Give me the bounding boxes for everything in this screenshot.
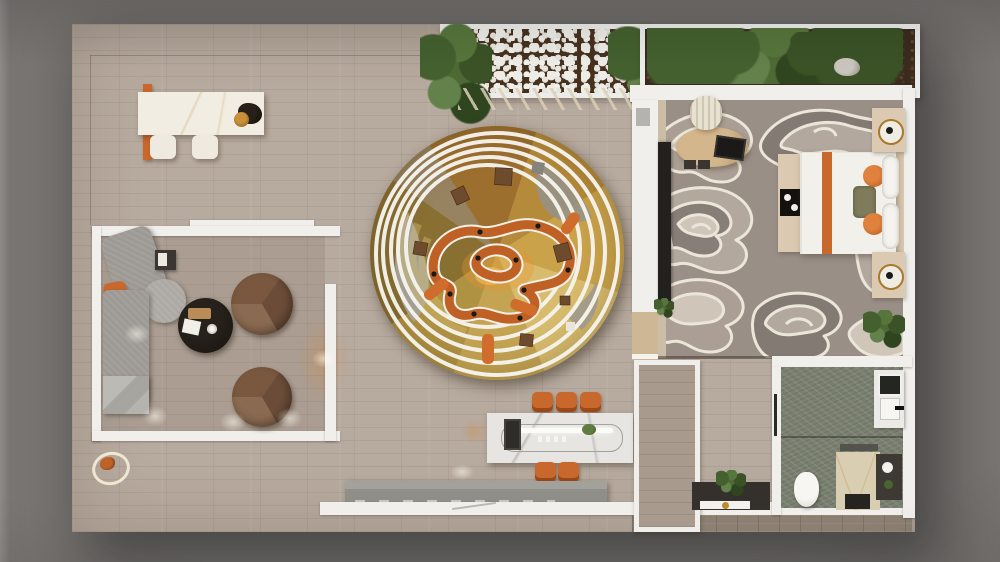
dining-chair (532, 392, 553, 412)
toilet (794, 472, 819, 507)
coffee-machine (504, 419, 521, 450)
living-wall-left (92, 226, 101, 441)
nightstand-lamp-center (886, 272, 893, 279)
bedroom-door-threshold (632, 312, 658, 360)
light-pool (124, 324, 150, 344)
niche-plant (884, 480, 893, 489)
bedroom-wall-left (632, 100, 658, 312)
desk-tray (684, 160, 696, 169)
console-plant (716, 470, 746, 496)
nightstand-lamp-center (886, 127, 893, 134)
side-table-card (158, 253, 167, 266)
reception-stool-right (192, 135, 218, 159)
shower-head-bar (840, 444, 878, 451)
coffee-table-tray (188, 308, 211, 319)
coffee-table-cup (207, 324, 217, 334)
footboard-tray-cup (784, 194, 791, 201)
light-pool (312, 350, 336, 368)
dining-chair (556, 392, 577, 412)
bedroom-bath-divider (658, 356, 774, 359)
paper-roll (882, 462, 893, 473)
light-pool (220, 412, 246, 432)
bedroom-door-leaf (632, 354, 658, 359)
floor-plate (72, 24, 915, 532)
floor-seam-vertical (90, 55, 91, 225)
bedroom-tree (863, 310, 905, 348)
reception-gold-bowl (234, 112, 249, 127)
bathroom-wall-top (772, 356, 912, 367)
vanity-faucet (895, 406, 904, 410)
closet (634, 360, 700, 532)
bathroom-partition-line (781, 436, 903, 438)
living-wall-bottom (92, 431, 340, 441)
bed-pillow (882, 203, 899, 249)
floor-seam-horizontal (90, 55, 442, 56)
bedroom-wall-right (903, 88, 915, 518)
dining-warm-glow (460, 420, 488, 444)
slatted-walkway (458, 88, 644, 110)
circle-detail (370, 126, 624, 380)
rail-light-bar (509, 428, 613, 433)
console-gold-vase (722, 502, 729, 509)
light-pool (142, 406, 168, 426)
bedroom-door-panel (636, 108, 650, 126)
bed-pillow (882, 155, 899, 199)
dining-chair (535, 462, 556, 482)
floor-plan-render (0, 0, 1000, 562)
footboard-tray-cup (791, 204, 798, 211)
amphitheatre-circle (370, 126, 624, 380)
desk-tray (698, 160, 710, 169)
dining-chair (580, 392, 601, 412)
fern-cluster (712, 32, 832, 84)
table-items (538, 436, 568, 442)
dining-chair (558, 462, 579, 482)
table-plant (582, 424, 596, 435)
planter-rock (834, 58, 860, 76)
bathroom-glass-door (774, 394, 777, 436)
console-plant-small (654, 298, 674, 318)
background-edge-light (0, 0, 10, 562)
vanity-mirror (878, 374, 902, 396)
bath-niche (876, 454, 902, 500)
light-pool (450, 464, 474, 480)
shower-mat (845, 494, 870, 509)
light-pool (276, 408, 302, 428)
bathroom-wall-left (772, 367, 781, 515)
palm-plant-left (420, 24, 492, 128)
reception-stool-left (150, 135, 176, 159)
bed-orange-runner (820, 152, 834, 254)
laptop (714, 135, 747, 161)
media-console (658, 142, 671, 314)
lounge-chair-top (231, 273, 293, 335)
desk-chair (690, 96, 722, 130)
